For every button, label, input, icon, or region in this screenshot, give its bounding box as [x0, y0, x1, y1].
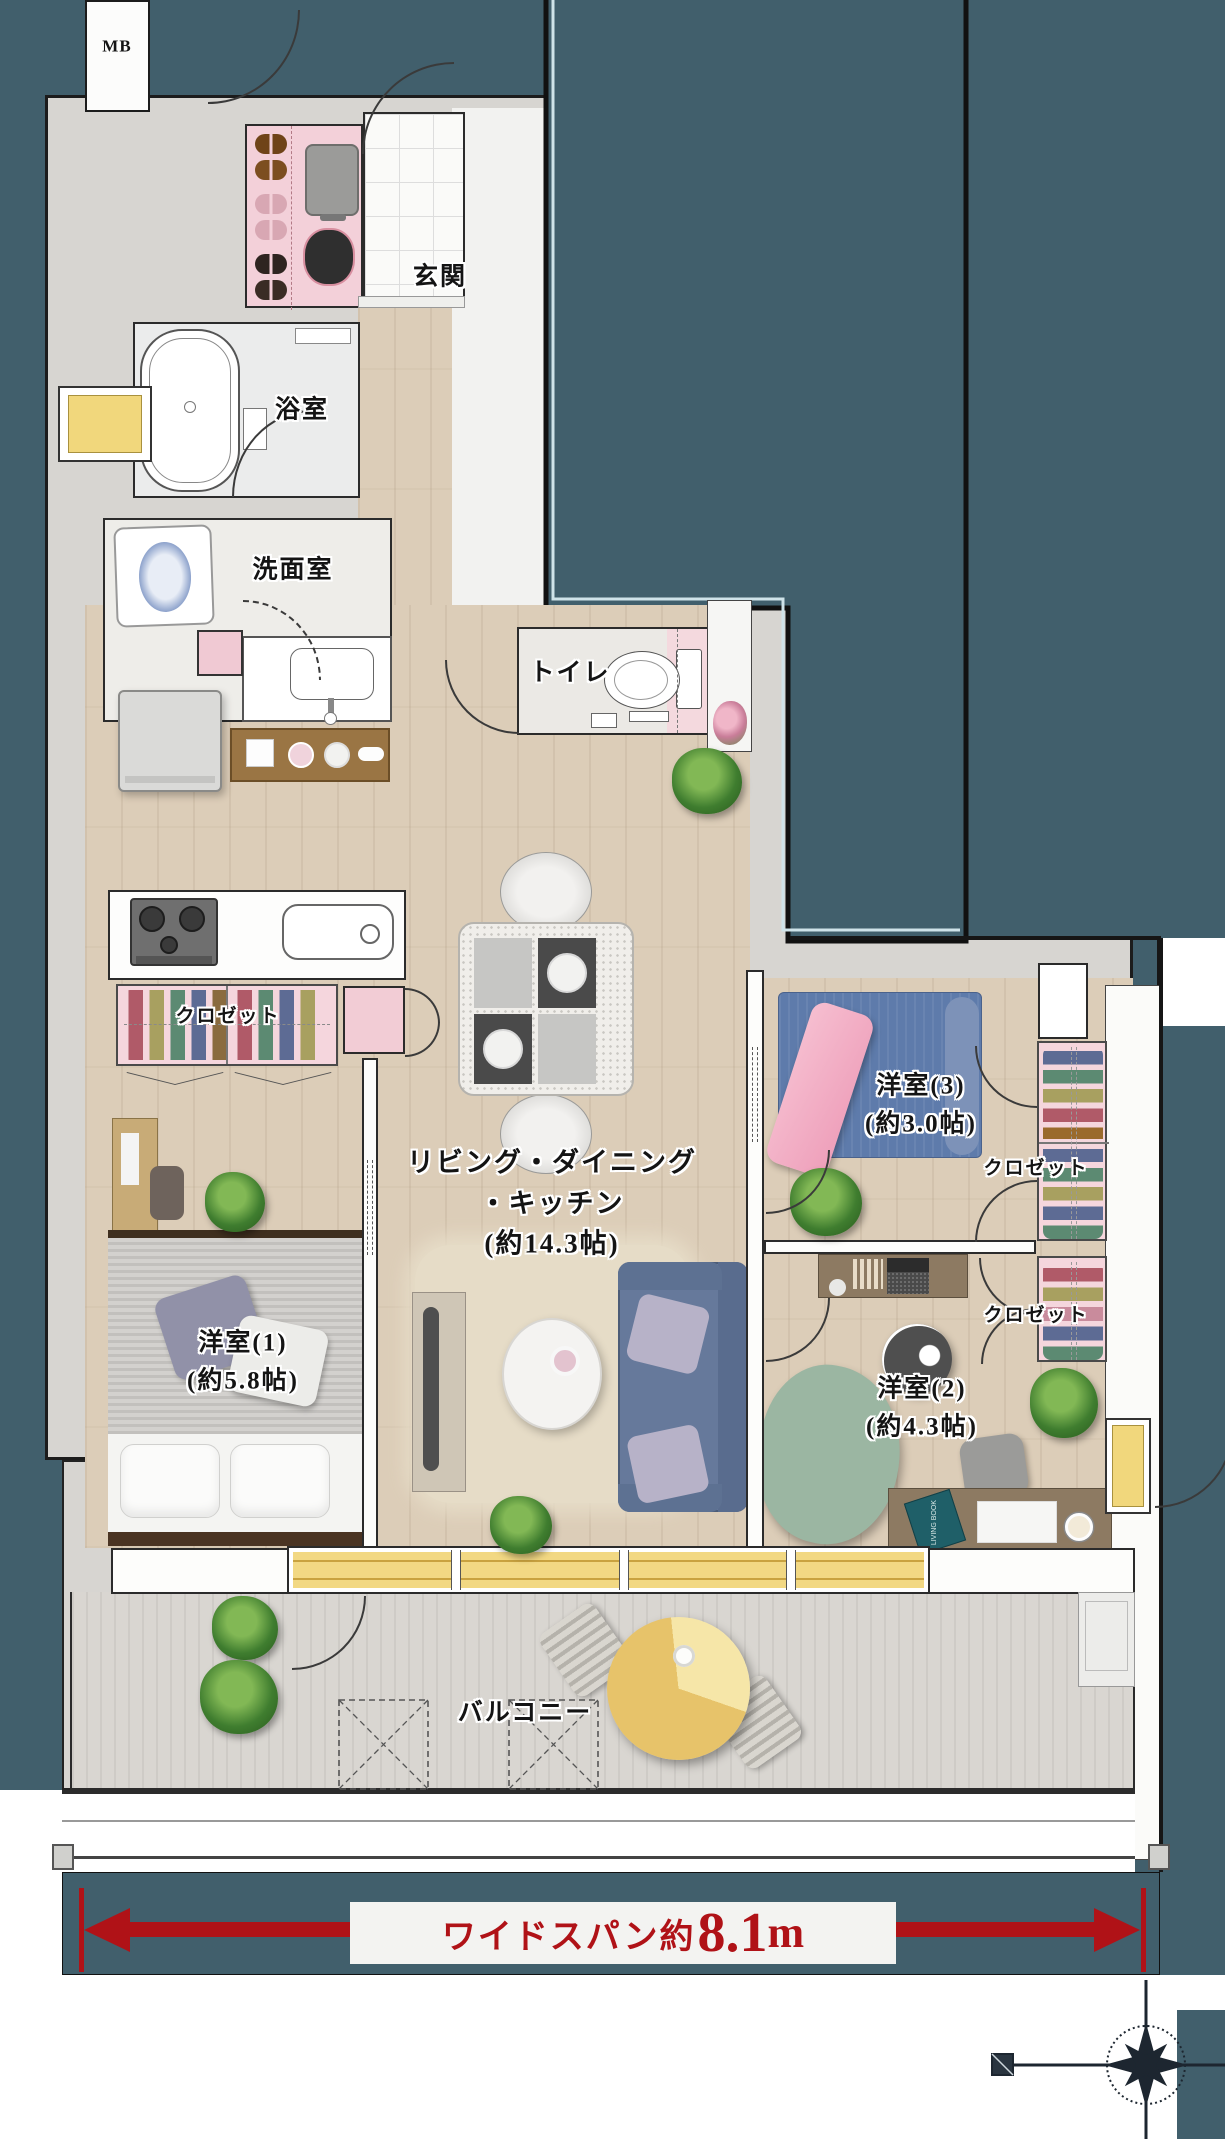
arrow-head-left-icon: [84, 1908, 130, 1952]
ac-outdoor-unit: [1078, 1592, 1135, 1687]
side-window-door-arc: [1155, 1430, 1225, 1508]
dish-shelf: [230, 728, 390, 782]
shoes-pair: [255, 160, 287, 180]
railing-line: [62, 1820, 1135, 1822]
balcony-plant-icon: [200, 1660, 278, 1734]
arrow-head-right-icon: [1094, 1908, 1140, 1952]
entrance-door-arc-right: [362, 62, 454, 154]
east-outline: [1159, 938, 1163, 1872]
bath-shelf: [295, 328, 351, 344]
window-mullion: [619, 1550, 629, 1590]
railing-post: [1148, 1844, 1170, 1870]
shoes-pair: [255, 134, 287, 154]
tv-icon: [423, 1307, 439, 1471]
toilet-paper-holder: [591, 713, 617, 728]
entrance-door-arc-left: [208, 10, 300, 104]
washroom-label: 洗面室: [252, 551, 333, 589]
bedroom2-desk: LIVING BOOK: [888, 1488, 1112, 1550]
balcony-plant-icon: [212, 1596, 278, 1660]
bedroom2-shelf-desk: [818, 1254, 968, 1298]
shoes-pair: [255, 194, 287, 214]
south-window-band: [287, 1546, 930, 1594]
balcony-label: バルコニー: [458, 1694, 593, 1732]
balcony-hatch-square: [337, 1698, 430, 1791]
toilet-bowl-icon: [604, 651, 680, 709]
railing-band: [0, 1790, 1135, 1875]
bedroom1-plant-icon: [205, 1172, 265, 1232]
dining-chair: [500, 852, 592, 932]
stroller: [303, 228, 355, 286]
closet-bedroom2-label: クロゼット: [983, 1302, 1088, 1331]
shoe-divider: [291, 126, 292, 310]
closet-bedroom3: [1037, 1041, 1107, 1241]
ldk-label: リビング・ダイニング ・キッチン (約14.3帖): [407, 1142, 697, 1264]
south-wall-right: [928, 1548, 1135, 1594]
bedroom3-label: 洋室(3) (約3.0帖): [865, 1068, 977, 1143]
exterior-white-band: [452, 108, 548, 608]
stove-icon: [130, 898, 218, 966]
sofa: [618, 1262, 748, 1512]
shoes-pair: [255, 254, 287, 274]
wall-bedroom3-bedroom2: [764, 1240, 1036, 1254]
wall-ldk-bedrooms: [746, 970, 764, 1562]
bathtub-icon: [140, 329, 240, 492]
washing-machine-icon: [113, 524, 214, 627]
window-mullion: [786, 1550, 796, 1590]
coffee-table: [502, 1318, 602, 1430]
mug-icon: [1065, 1513, 1093, 1541]
south-wall-left: [111, 1548, 289, 1594]
suitcase: [305, 144, 359, 216]
entrance-label: 玄関: [413, 258, 467, 296]
bedroom2-label: 洋室(2) (約4.3帖): [866, 1371, 978, 1446]
window-mullion: [451, 1550, 461, 1590]
bath-window: [58, 386, 152, 462]
toilet-label: トイレ: [529, 654, 610, 692]
shoe-cabinet: [245, 124, 363, 308]
dimension-value: 8.1: [698, 1905, 768, 1961]
railing-line: [62, 1790, 1135, 1794]
railing-line: [62, 1856, 1135, 1859]
entrance-step: [358, 296, 465, 308]
closet-bedroom3-label: クロゼット: [983, 1155, 1088, 1184]
dimension-prefix: ワイドスパン約: [442, 1909, 696, 1958]
toilet-side-niche: [707, 600, 752, 752]
compass-icon: [980, 1955, 1225, 2139]
wall-line: [790, 936, 1161, 940]
mb-label: MB: [102, 33, 131, 59]
wall-bedroom1-ldk: [362, 1058, 378, 1550]
laptop-icon: [887, 1258, 929, 1294]
shoes-pair: [255, 220, 287, 240]
balcony-table-icon: [607, 1617, 750, 1760]
ldk-plant-icon: [490, 1496, 552, 1554]
exterior-corner-white: [1157, 938, 1225, 1026]
kitchen-sink-icon: [282, 904, 394, 960]
kitchen-counter: [108, 890, 406, 980]
dimension-unit: m: [768, 1911, 805, 1955]
refrigerator-icon: [118, 690, 222, 792]
dining-table: [458, 922, 634, 1096]
flower-pot-icon: [713, 701, 747, 745]
bathroom-label: 浴室: [275, 391, 329, 429]
bedroom1-label: 洋室(1) (約5.8帖): [187, 1325, 299, 1400]
washroom-cabinet: [197, 630, 243, 676]
dimension-label-box: ワイドスパン約 8.1 m: [350, 1902, 896, 1964]
side-window: [1105, 1418, 1151, 1514]
shoes-pair: [255, 280, 287, 300]
toilet-counter: [629, 711, 669, 722]
closet-bedroom1-label: クロゼット: [175, 1003, 280, 1032]
tv-board: [412, 1292, 466, 1492]
kitchen-pink-cabinet: [343, 986, 405, 1054]
outside-top-right: [962, 0, 1225, 940]
bedroom1-chair: [150, 1166, 184, 1220]
railing-post: [52, 1844, 74, 1870]
ldk-plant-icon: [672, 748, 742, 814]
pillar: [1038, 963, 1088, 1039]
book-title: LIVING BOOK: [932, 1499, 939, 1544]
floor-plan: MB 玄関 浴室: [0, 0, 1225, 2139]
teacup-icon: [550, 1346, 580, 1376]
bedroom2-plant-icon: [1030, 1368, 1098, 1438]
